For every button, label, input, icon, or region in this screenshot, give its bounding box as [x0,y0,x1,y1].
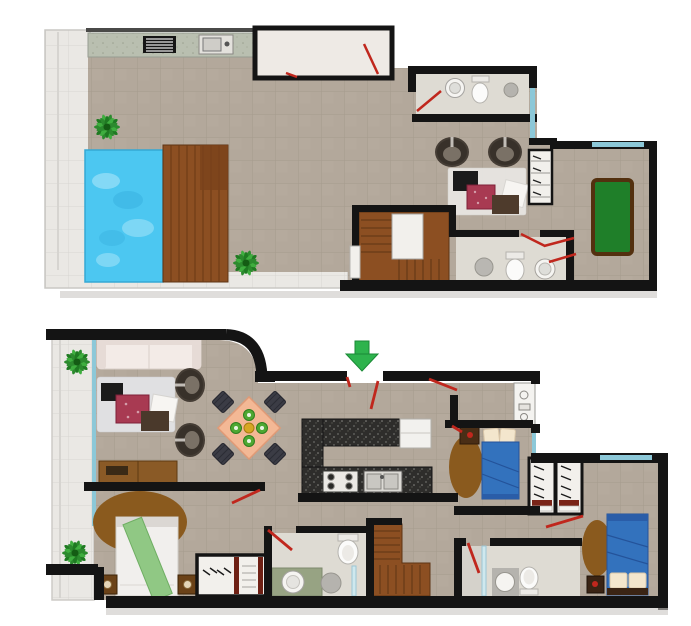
armchair [175,368,205,402]
pillow [629,573,646,588]
single-bed-blue [607,514,648,595]
armchair [488,137,522,167]
plan-shadow [60,291,657,298]
shower-drain-icon [504,83,518,97]
toilet-icon [520,567,538,595]
shower-glass [352,566,356,596]
double-bed [116,517,178,601]
shower-glass [482,546,486,596]
counter-sink-icon [199,35,233,54]
armchair [435,137,469,167]
kitchen-sink-icon [364,471,402,492]
toilet-icon [338,534,358,564]
window-band [530,88,535,138]
nightstand [587,576,604,593]
ottoman-brown [141,411,169,431]
toilet-icon [472,76,489,103]
armchair [175,423,205,457]
refrigerator-icon [400,419,431,448]
main-floor-plan [46,329,668,615]
window-band [600,455,652,460]
grill-icon [143,36,176,53]
entrance-arrow-icon [346,341,378,371]
staircase-upper [359,212,449,283]
oval-rug [449,436,483,498]
sofa [97,336,201,369]
console-sideboard [99,461,177,483]
swimming-pool [85,150,163,282]
window-band [532,433,536,453]
nightstand [178,575,197,594]
upper-floor-plan [45,28,657,298]
toilet-icon [506,252,524,281]
cooktop-icon [323,471,358,492]
shower-drain-icon [475,258,493,276]
bedroom-3 [582,514,648,595]
window-band [92,340,96,526]
single-bed-blue [482,442,519,499]
pillow [610,573,627,588]
shower-drain-icon [321,573,341,593]
plan-shadow [106,608,668,615]
terrace-top-edge [86,28,262,32]
wood-deck [163,145,228,282]
centerpiece [244,423,254,433]
shelf-closet [529,150,552,204]
billiard-table [593,180,632,254]
laundry-closet [514,383,535,426]
floor-plan-figure [0,0,691,626]
nightstand [460,426,479,444]
round-sink-icon [496,573,515,592]
master-bathroom [272,533,366,596]
stair-door-gap [350,246,360,278]
coffee-table-crimson [467,185,495,209]
bathroom-upper [416,74,529,114]
floor-plan-canvas [0,0,691,626]
window-band [592,142,644,147]
stair-landing [392,214,423,259]
closet-1 [529,458,555,514]
ottoman-brown [492,195,519,214]
dining-area [212,391,287,466]
closet-2 [556,458,582,514]
storage-room [255,28,392,78]
